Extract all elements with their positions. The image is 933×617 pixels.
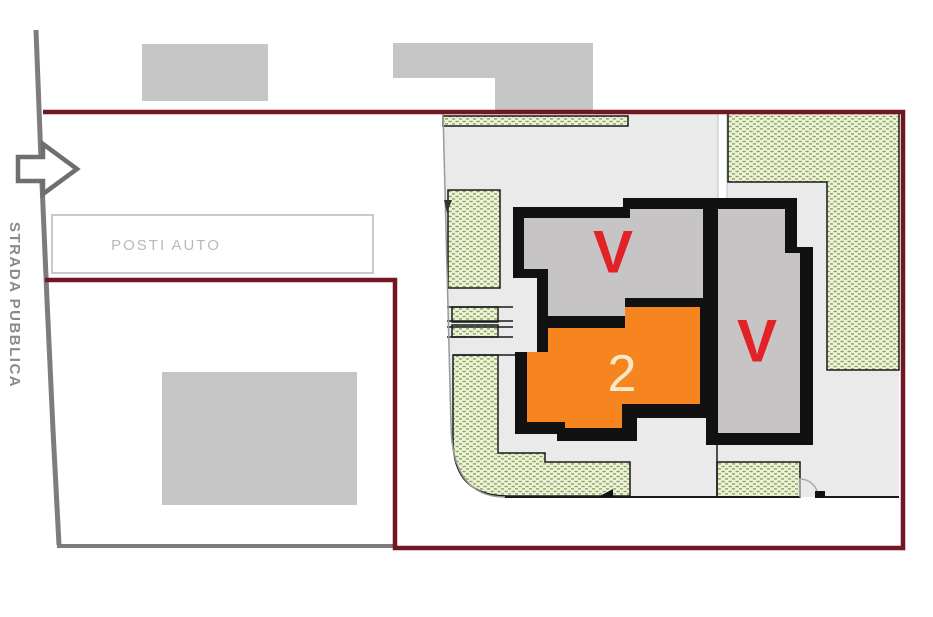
site-plan-svg: POSTI AUTO V V 2 STRADA PUBBLICA (0, 0, 933, 617)
garden-strip-top (443, 116, 628, 126)
neighbor-building-bottom-left (162, 372, 357, 505)
unit-number-label: 2 (608, 345, 637, 403)
door-jamb (815, 491, 825, 498)
unit-right-status-label: V (737, 308, 777, 375)
parking-area-label: POSTI AUTO (111, 237, 221, 254)
neighbor-building-top-left (142, 44, 268, 101)
garden-bed-small-1 (452, 307, 498, 322)
road-label: STRADA PUBBLICA (6, 222, 23, 388)
unit-left-status-label: V (593, 219, 633, 286)
garden-bed-bottom (717, 462, 800, 497)
path-strip (718, 112, 727, 198)
garden-bed-left (448, 190, 500, 288)
